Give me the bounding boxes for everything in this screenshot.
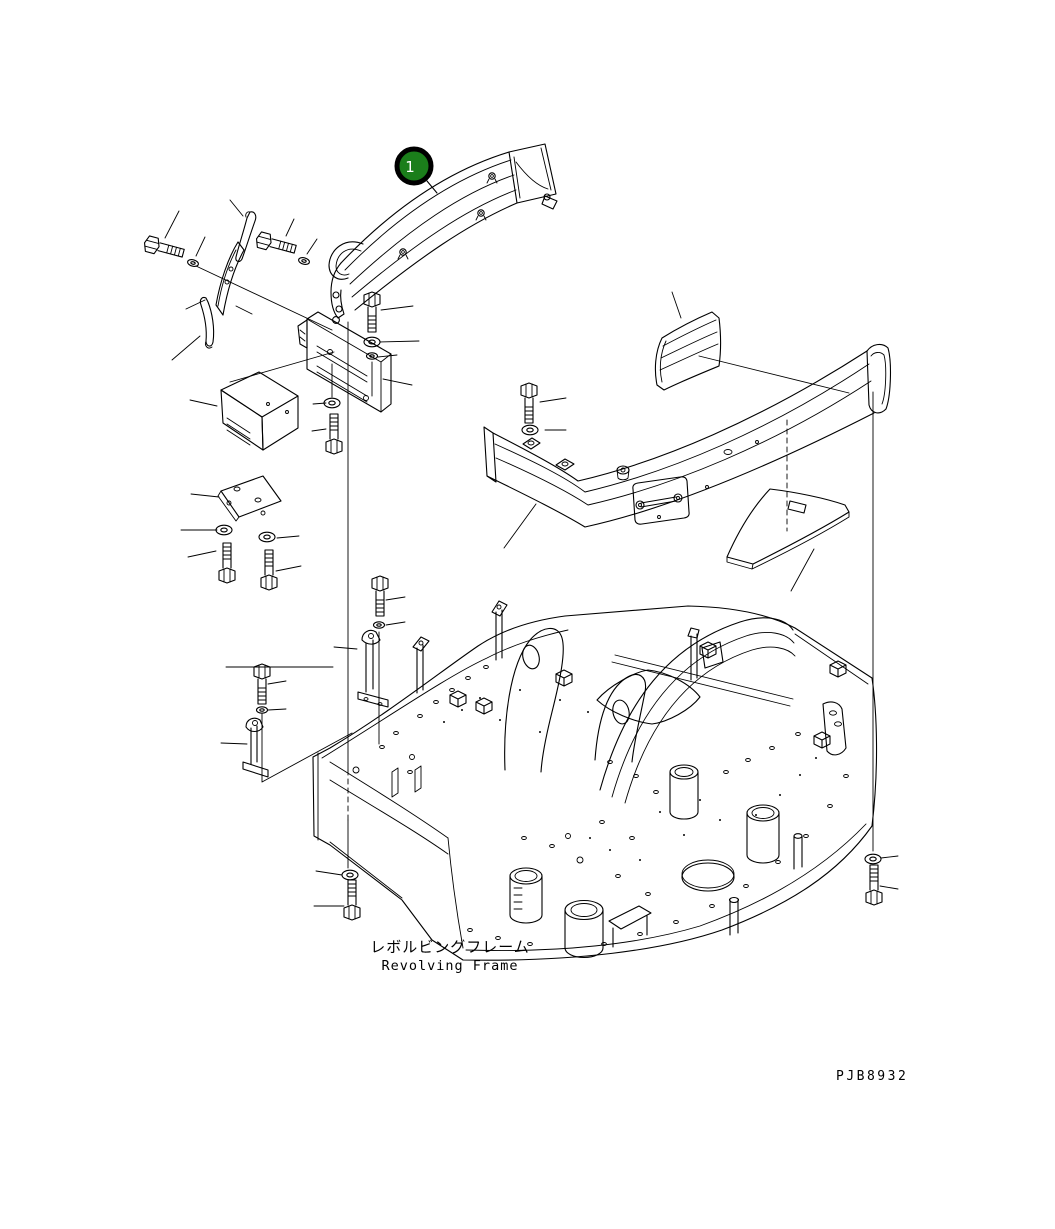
mounting-clip (200, 297, 213, 346)
hex-bolt (254, 231, 297, 257)
frame-bottom-bracket (609, 906, 651, 947)
guard-rail (329, 144, 557, 323)
frame-cylinder (565, 901, 603, 958)
frame-peg (794, 834, 802, 869)
frame-outline (313, 606, 877, 960)
mounting-clip (236, 212, 256, 262)
cover-box (221, 372, 298, 450)
hex-bolt (326, 414, 342, 454)
frame-cylinder (510, 868, 542, 923)
frame-side-bracket (823, 702, 846, 755)
frame-round-opening (682, 863, 734, 891)
washer (298, 256, 310, 265)
parts-diagram-page: 1 (0, 0, 1055, 1229)
frame-strap (413, 637, 429, 693)
side-plate (727, 489, 849, 569)
washer (374, 622, 385, 628)
assembly-lines (262, 322, 873, 868)
frame-cylinder (670, 765, 698, 819)
leader-lines (165, 200, 898, 906)
revolving-frame (313, 601, 877, 960)
washer (342, 870, 358, 880)
drawing-number: PJB8932 (836, 1069, 908, 1084)
hex-bolt (142, 235, 185, 261)
retainer-strip (216, 242, 244, 315)
callout-1-hotspot[interactable]: 1 (397, 149, 437, 193)
hex-bolt (344, 880, 360, 920)
bumper-end-cap (867, 344, 890, 412)
hex-bolt (521, 383, 537, 423)
frame-strap (358, 630, 388, 707)
hex-bolt (372, 576, 388, 616)
callout-leader (427, 181, 437, 193)
rail-bolt-boss (487, 173, 497, 183)
washer (216, 525, 232, 535)
washer (364, 337, 380, 347)
spacer-ring (367, 353, 378, 359)
mounting-bracket-assembly (298, 292, 391, 454)
hex-bolt (261, 550, 277, 590)
caption-english: Revolving Frame (382, 958, 519, 974)
frame-cylinder (747, 805, 779, 863)
pad (655, 312, 720, 390)
callout-number: 1 (405, 158, 415, 176)
washer (259, 532, 275, 542)
parts-diagram-canvas: 1 (0, 0, 1055, 1229)
frame-peg (730, 898, 739, 936)
frame-bolt-holes (380, 666, 849, 946)
mounting-plate (221, 476, 281, 517)
mounting-bracket (307, 312, 391, 412)
caption-japanese: レボルビングフレーム (370, 938, 530, 956)
mounting-plate-assembly (216, 476, 281, 590)
boom-mount (505, 618, 795, 803)
frame-strap (243, 718, 268, 777)
washer (865, 854, 881, 864)
frame-strap (492, 601, 507, 660)
washer (522, 425, 538, 435)
hex-bolt (364, 292, 380, 332)
frame-strap (688, 628, 723, 680)
hex-bolt (219, 543, 235, 583)
washer (257, 707, 268, 713)
hex-bolt (866, 865, 882, 905)
